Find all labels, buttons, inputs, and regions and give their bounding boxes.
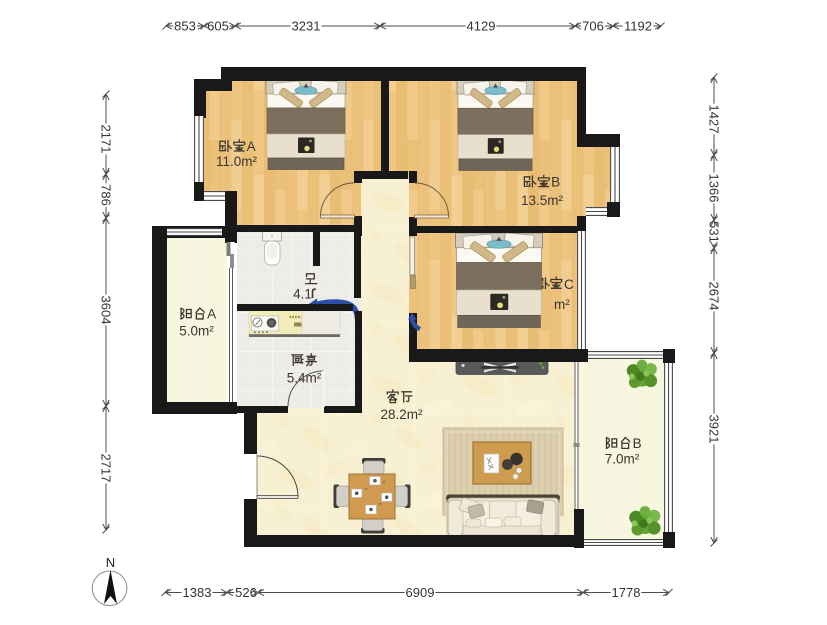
svg-text:3604: 3604: [99, 296, 114, 325]
svg-text:531: 531: [707, 221, 722, 243]
svg-text:3921: 3921: [707, 415, 722, 444]
svg-text:605: 605: [207, 19, 229, 34]
svg-text:A: A: [247, 139, 256, 154]
svg-text:m²: m²: [554, 297, 570, 312]
svg-text:B: B: [551, 174, 560, 189]
svg-text:6909: 6909: [406, 585, 435, 600]
svg-text:706: 706: [582, 19, 604, 34]
svg-text:C: C: [564, 277, 574, 292]
svg-text:5.4m²: 5.4m²: [287, 370, 322, 385]
svg-text:1366: 1366: [707, 174, 722, 203]
svg-text:1778: 1778: [612, 585, 641, 600]
svg-text:A: A: [207, 306, 216, 321]
svg-text:13.5m²: 13.5m²: [521, 193, 564, 208]
svg-text:1427: 1427: [707, 105, 722, 134]
svg-text:4.1: 4.1: [293, 286, 312, 301]
svg-text:4129: 4129: [467, 19, 496, 34]
svg-text:1192: 1192: [624, 19, 652, 34]
svg-text:3231: 3231: [292, 19, 321, 34]
svg-text:2674: 2674: [707, 282, 722, 311]
svg-text:2717: 2717: [99, 454, 114, 483]
svg-text:5.0m²: 5.0m²: [179, 323, 214, 338]
svg-text:2171: 2171: [99, 125, 114, 154]
svg-text:1383: 1383: [183, 585, 212, 600]
svg-text:11.0m²: 11.0m²: [216, 154, 258, 169]
svg-text:B: B: [633, 436, 642, 451]
svg-text:786: 786: [99, 184, 114, 206]
svg-text:N: N: [106, 555, 115, 570]
svg-text:526: 526: [235, 585, 257, 600]
svg-text:7.0m²: 7.0m²: [605, 451, 640, 466]
svg-text:853: 853: [174, 19, 196, 34]
svg-text:28.2m²: 28.2m²: [380, 407, 423, 422]
